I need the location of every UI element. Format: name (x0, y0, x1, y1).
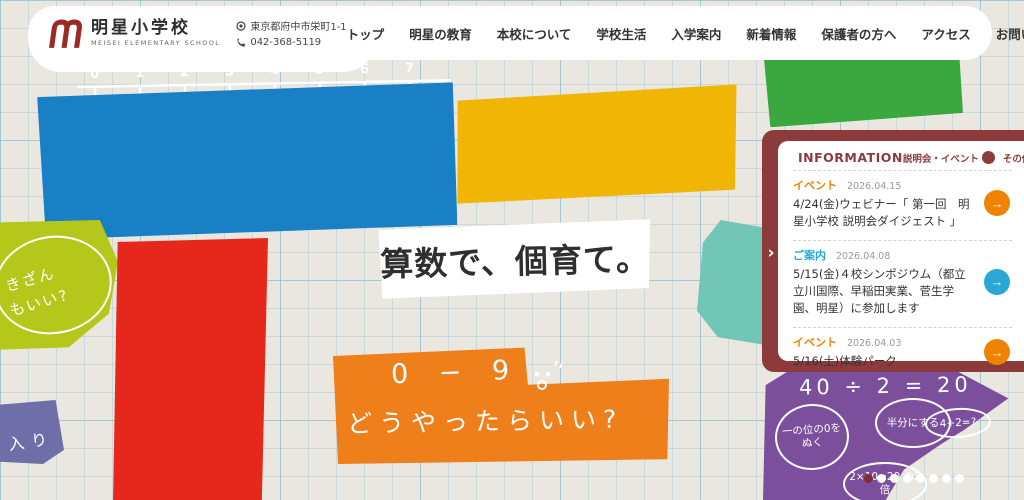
pagination-dot[interactable] (903, 474, 912, 483)
carousel-pagination (864, 474, 964, 483)
news-date: 2026.04.08 (836, 251, 890, 262)
nav-item-top[interactable]: トップ (347, 24, 385, 43)
pagination-dot[interactable] (929, 474, 938, 483)
meisei-school-homepage: 0 1 2 3 4 5 6 7 マス くん だよ よろしく 2 × 3 = 6 (0, 0, 1024, 500)
news-title: 4/24(金)ウェビナー「 第一回 明星小学校 説明会ダイジェスト 」 (793, 196, 976, 229)
pagination-dot[interactable] (890, 474, 899, 483)
doodle-navy-note: 入り (0, 400, 64, 464)
arrow-right-circle-button[interactable]: → (984, 269, 1010, 295)
arrow-down-circle-icon: ↓ (982, 151, 995, 164)
logo-m-icon (48, 16, 84, 50)
category-badge: イベント (793, 177, 837, 193)
panel-collapse-chevron-icon[interactable]: › (764, 242, 778, 264)
filter-events-link[interactable]: 説明会・イベント ↓ (903, 151, 995, 165)
news-date: 2026.04.15 (847, 181, 901, 192)
svg-text:7: 7 (405, 61, 414, 76)
nav-item-news[interactable]: 新着情報 (746, 24, 796, 43)
nav-item-contact[interactable]: お問い合わせ (996, 24, 1024, 43)
nav-item-admissions[interactable]: 入学案内 (671, 24, 721, 43)
hero-headline-card: 算数で、個育て。 (378, 219, 651, 299)
blue-note-shape (35, 82, 458, 239)
surprised-face-icon (529, 360, 563, 394)
address: 東京都府中市栄町1-1 (250, 18, 346, 33)
phone-icon (236, 38, 246, 48)
header-contact: 東京都府中市栄町1-1 042-368-5119 (236, 18, 346, 48)
category-badge: ご案内 (793, 247, 826, 263)
doodle-orange-how-to: 0 − 9 どうやったらいい? (333, 344, 669, 464)
pagination-dot[interactable] (864, 474, 873, 483)
arrow-right-circle-button[interactable]: → (984, 339, 1010, 365)
red-note-shape (113, 238, 268, 500)
filter-other-link[interactable]: その他 ↓ (1003, 151, 1024, 165)
nav-item-school-life[interactable]: 学校生活 (596, 24, 646, 43)
location-icon (236, 21, 246, 31)
doodle-blue-masu-kun: 0 1 2 3 4 5 6 7 マス くん だよ よろしく (34, 56, 459, 239)
site-header: 明星小学校 MEISEI ELEMENTARY SCHOOL 東京都府中市栄町1… (28, 6, 992, 60)
nav-item-parents[interactable]: 保護者の方へ (821, 24, 896, 43)
doodle-lime-subtraction: きざん もいい? (0, 220, 118, 350)
school-name: 明星小学校 (91, 19, 220, 38)
news-item[interactable]: イベント 2026.04.03 5/16(土)体験パーク → (793, 327, 1012, 376)
pagination-dot[interactable] (942, 474, 951, 483)
pagination-dot[interactable] (877, 474, 886, 483)
doodle-teal-box (697, 220, 771, 346)
pagination-dot[interactable] (955, 474, 964, 483)
site-logo[interactable]: 明星小学校 MEISEI ELEMENTARY SCHOOL (48, 16, 220, 50)
main-nav: トップ 明星の教育 本校について 学校生活 入学案内 新着情報 保護者の方へ ア… (347, 24, 1024, 43)
school-name-en: MEISEI ELEMENTARY SCHOOL (91, 39, 220, 47)
news-title: 5/15(金)４校シンポジウム（都立立川国際、早稲田実業、菅生学園、明星）に参加… (793, 266, 976, 316)
pagination-dot[interactable] (916, 474, 925, 483)
nav-item-about[interactable]: 本校について (497, 24, 572, 43)
information-panel: › INFORMATION 説明会・イベント ↓ その他 ↓ (762, 130, 1024, 372)
news-date: 2026.04.03 (847, 338, 901, 349)
information-title: INFORMATION (798, 150, 903, 165)
news-item[interactable]: イベント 2026.04.15 4/24(金)ウェビナー「 第一回 明星小学校 … (793, 170, 1012, 235)
category-badge: イベント (793, 334, 837, 350)
doodle-yellow-multiplication: 2 × 3 = 6 す (455, 84, 740, 203)
news-item[interactable]: ご案内 2026.04.08 5/15(金)４校シンポジウム（都立立川国際、早稲… (793, 240, 1012, 322)
nav-item-education[interactable]: 明星の教育 (409, 24, 472, 43)
hero-headline: 算数で、個育て。 (380, 232, 651, 286)
arrow-right-circle-button[interactable]: → (984, 190, 1010, 216)
news-title: 5/16(土)体験パーク (793, 353, 976, 370)
doodle-red-addition: 7 +8 =5 + 10 15 + (113, 238, 268, 500)
nav-item-access[interactable]: アクセス (921, 24, 970, 43)
phone-number[interactable]: 042-368-5119 (250, 37, 321, 48)
information-card: INFORMATION 説明会・イベント ↓ その他 ↓ イベント 2026.0… (778, 141, 1024, 361)
yellow-note-shape (455, 84, 740, 203)
